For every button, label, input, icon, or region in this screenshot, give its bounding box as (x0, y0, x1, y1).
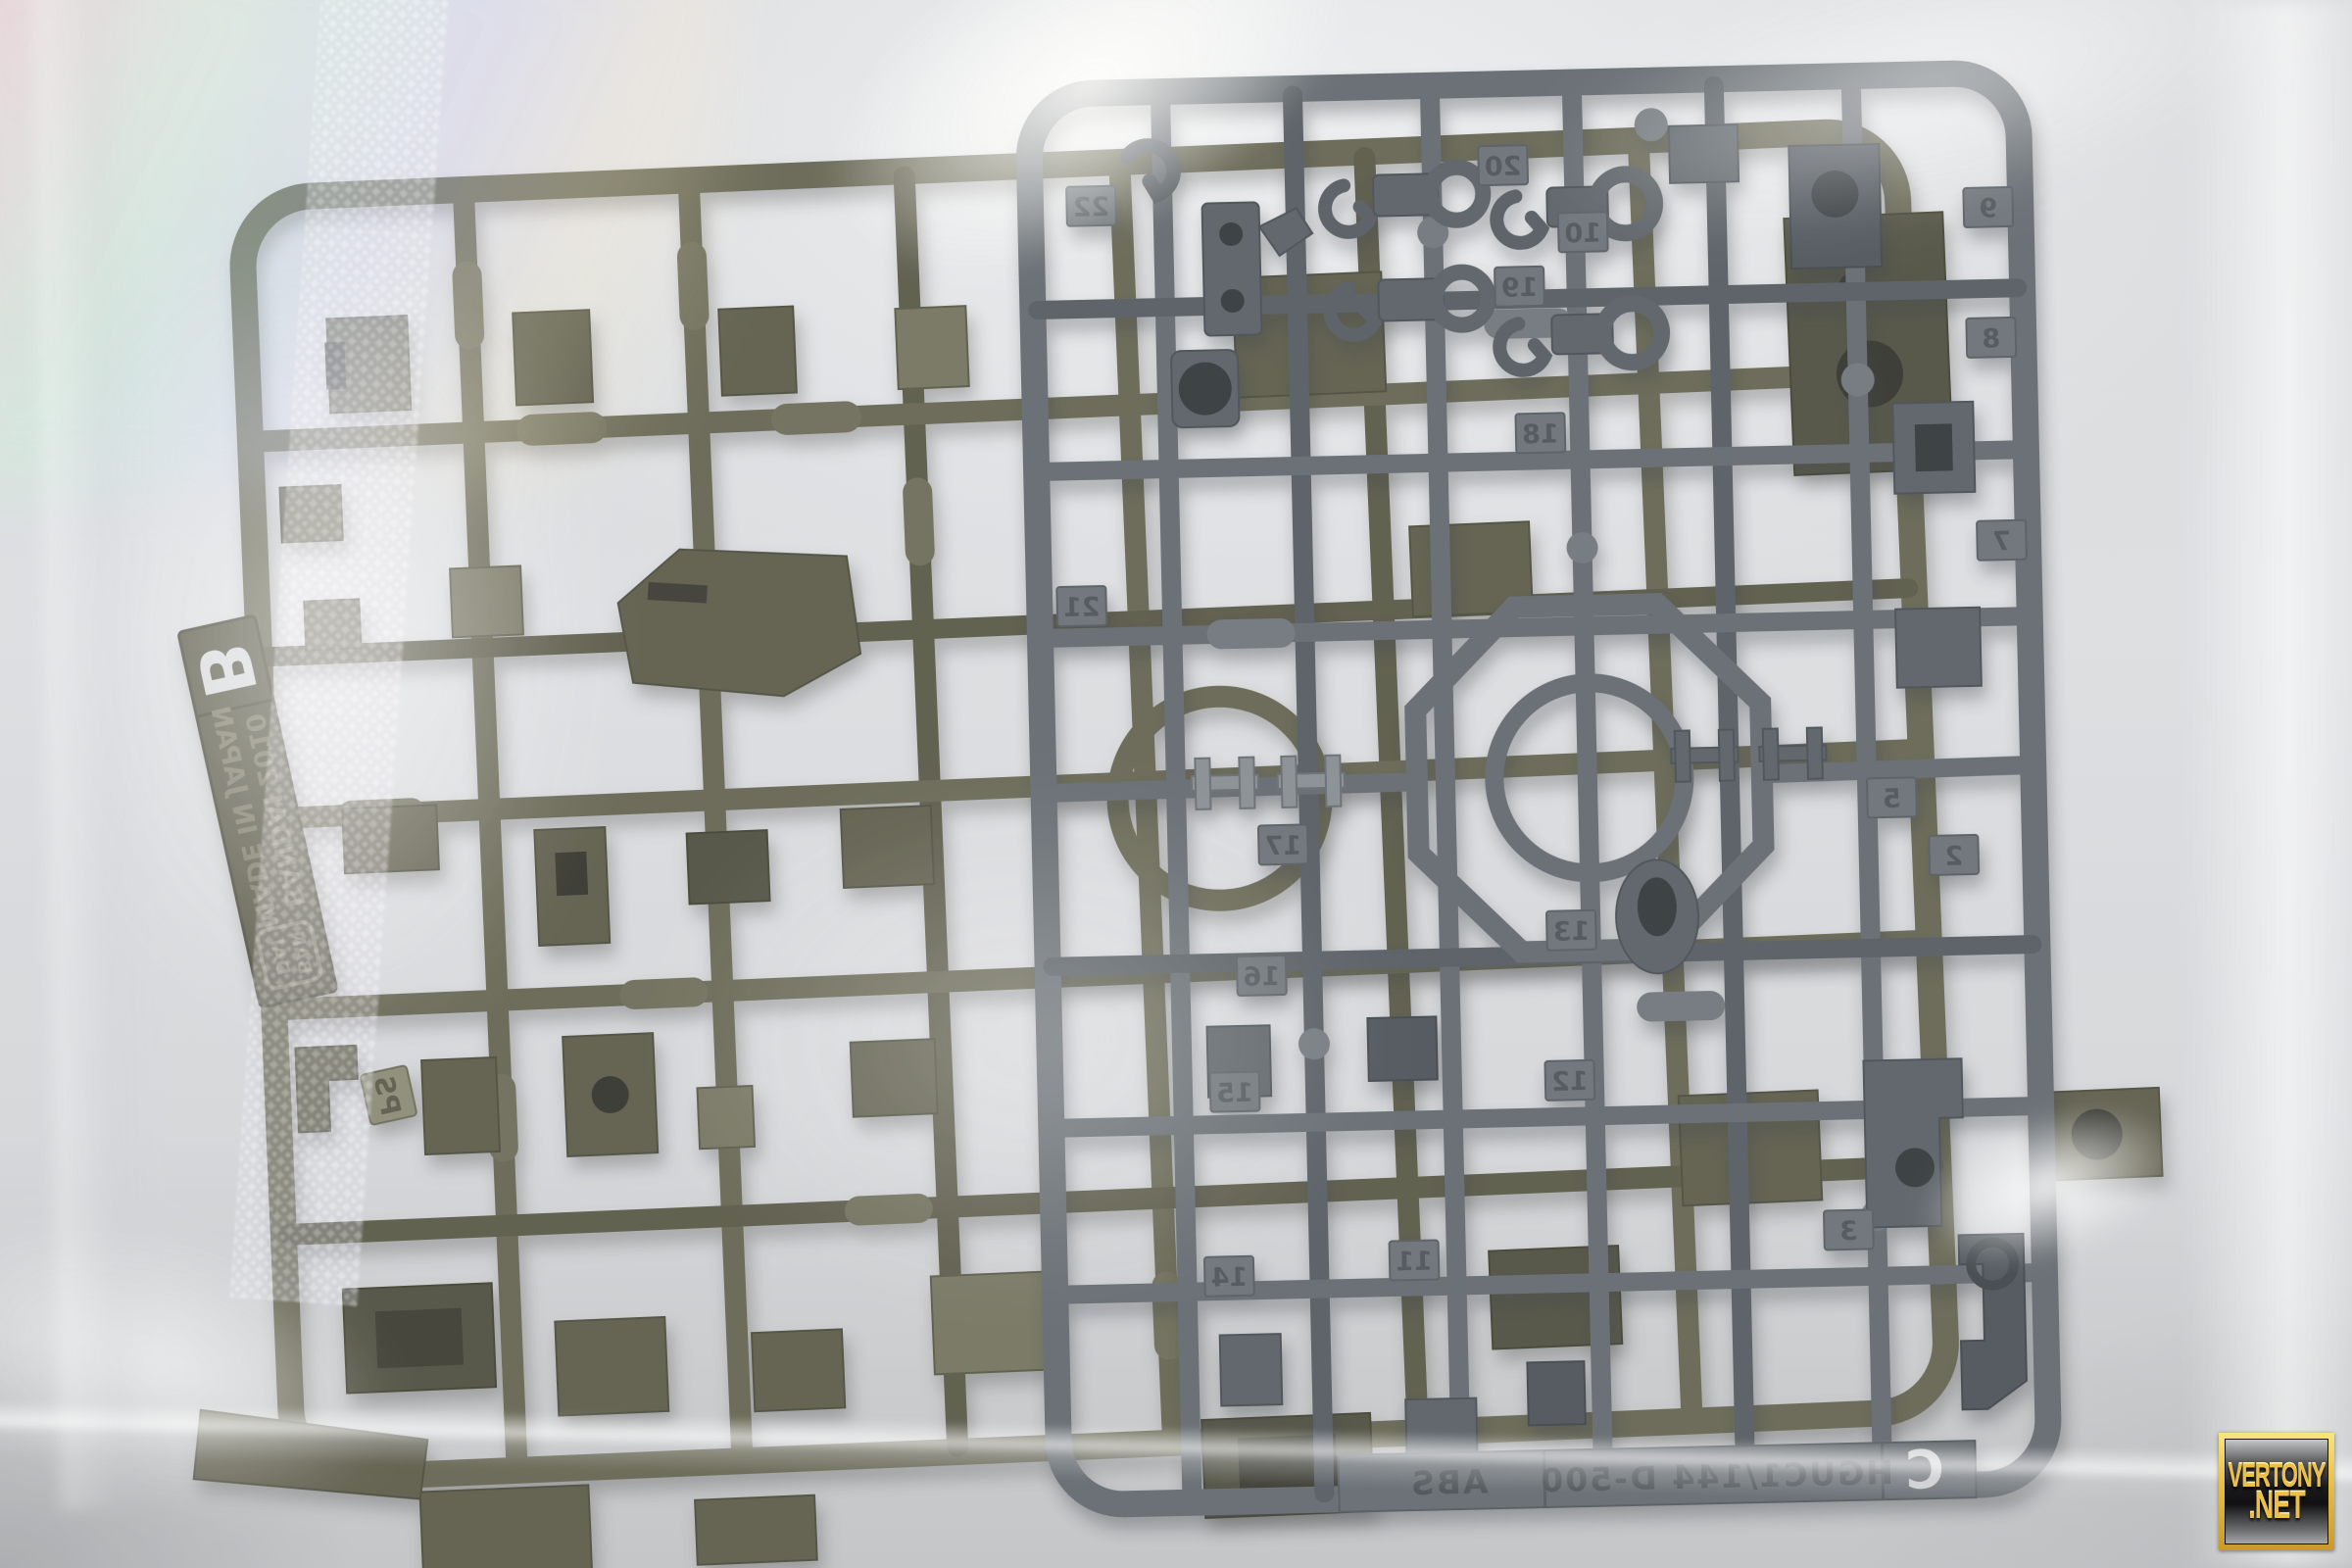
sprue-part (718, 307, 797, 396)
part-number-tag: 11 (1396, 1247, 1433, 1278)
sprue-part (1405, 1398, 1477, 1455)
bag-sheen-streak-top (765, 0, 1410, 351)
bag-left-edge-fold (33, 0, 168, 1510)
sprue-part (534, 827, 610, 946)
sprue-part (1546, 186, 1608, 226)
sprue-part (1551, 314, 1613, 354)
sprue-part (697, 1086, 755, 1149)
sprue-part (1499, 323, 1545, 371)
part-number-tag: 14 (1210, 1262, 1248, 1294)
olive-ps-tag: PS (360, 1065, 416, 1125)
sprue-part (895, 306, 968, 389)
bag-sheen-streak-topright (1509, 0, 2352, 309)
bag-sheen-spot (1885, 1066, 2213, 1306)
sprue-part (1863, 1058, 1965, 1227)
sprue-part (1615, 858, 1700, 974)
maker-text-line2: MADE IN JAPAN (204, 704, 282, 932)
part-number-tag: 19 (1500, 272, 1538, 304)
sprue-part (342, 805, 439, 873)
material-abs-text: ABS (1408, 1462, 1488, 1502)
part-number-tag: 9 (1979, 193, 1997, 223)
sprue-part (752, 1329, 845, 1411)
bag-sheen-left-glow (39, 284, 608, 1068)
bag-iridescent-corner (0, 0, 725, 490)
part-number-tags: 22 21 20 19 18 17 16 15 14 13 12 11 10 9… (1047, 134, 2042, 1299)
sprue-part (1378, 278, 1444, 320)
sprue-part (851, 1039, 938, 1117)
sprue-part (1959, 1234, 2028, 1409)
sprue-part (1324, 185, 1370, 233)
part-number-tag: 21 (1063, 592, 1101, 623)
sprue-part (1679, 1090, 1823, 1205)
sprue-part (1201, 202, 1261, 335)
sprue-part (343, 1283, 496, 1393)
sprue-part (191, 1400, 430, 1508)
sprue-part (450, 565, 523, 637)
olive-sprue: B BANDAI 2010 MADE IN JAPAN BAN DAI (140, 121, 2176, 1568)
sprue-part (616, 542, 862, 703)
sprue-part (1201, 1413, 1374, 1518)
sprue-part (304, 599, 361, 650)
part-number-tag: 20 (1485, 151, 1522, 182)
grey-frame-and-rails (1028, 73, 2049, 1506)
part-number-tag: 18 (1522, 418, 1559, 450)
part-number-tag: 3 (1839, 1216, 1858, 1247)
sprue-part (1127, 145, 1174, 195)
olive-b-tag: B BANDAI 2010 MADE IN JAPAN BAN DAI (175, 615, 338, 1008)
bag-bottom-crease (0, 1364, 2352, 1538)
sprue-part (1409, 521, 1533, 616)
bag-bottomleft-fold (0, 1178, 431, 1566)
bag-seal-strip (230, 0, 451, 1306)
sprue-part (1367, 1016, 1437, 1081)
clip-parts (1191, 727, 1827, 809)
sprue-part (1602, 303, 1662, 363)
sprue-part (1595, 173, 1655, 233)
sprue-part (1232, 271, 1386, 397)
part-number-tag: 17 (1264, 831, 1301, 862)
sprue-part (513, 310, 593, 405)
sprue-part (563, 1033, 658, 1156)
part-number-tag: 10 (1564, 218, 1601, 249)
sprue-part (419, 1485, 591, 1568)
sprue-part (1373, 173, 1439, 216)
kit-marking-text: HGUC1/144 D-500 (1539, 1453, 1893, 1499)
part-number-tag: 8 (1982, 323, 2000, 354)
part-number-tag: 22 (1072, 192, 1109, 223)
grey-parts (1127, 119, 2028, 1460)
sprue-part (841, 806, 934, 888)
part-number-tag: 16 (1243, 961, 1280, 993)
sprue-part (1892, 402, 1975, 494)
part-number-tag: 7 (1992, 526, 2011, 557)
sprue-letter-b: B (179, 635, 271, 706)
bag-sheen-center-glow (666, 784, 1392, 1294)
sprues-illustration: B BANDAI 2010 MADE IN JAPAN BAN DAI (0, 0, 2352, 1568)
part-number-tag: 12 (1551, 1066, 1589, 1098)
sprue-part (1669, 124, 1739, 183)
sprue-part (421, 1057, 500, 1154)
bandai-logo-line2: DAI (266, 937, 295, 977)
sprue-part (555, 1317, 668, 1416)
part-number-tag: 2 (1944, 841, 1963, 871)
sprue-part (1330, 288, 1376, 336)
watermark-badge: VERTONY .NET (2219, 1433, 2334, 1550)
watermark-text-line2: .NET (2248, 1484, 2305, 1528)
sprue-part (1489, 1246, 1622, 1348)
part-number-tag: 5 (1883, 784, 1901, 814)
sprue-part (1895, 608, 1982, 688)
sprue-part (326, 316, 411, 413)
watermark-badge-inner: VERTONY .NET (2225, 1439, 2328, 1544)
sprue-letter-c: C (1904, 1439, 1944, 1501)
olive-frame-and-rails (240, 129, 1948, 1480)
sprue-part (1171, 350, 1240, 428)
sprue-part (2032, 1088, 2163, 1181)
maker-text-line1: BANDAI 2010 (238, 711, 311, 911)
sprue-part (695, 1495, 817, 1565)
sprue-part (1220, 1334, 1283, 1405)
sprue-part (1527, 1361, 1585, 1425)
sprue-part (295, 1046, 360, 1133)
sprue-part (1207, 1025, 1272, 1097)
bandai-logo-line1: BAN (285, 929, 316, 977)
sprue-part (1430, 167, 1484, 220)
sprue-part (931, 1271, 1054, 1374)
part-number-tag: 13 (1552, 916, 1590, 948)
sprue-part (279, 485, 342, 543)
photo-model-kit-sprues-in-bag: B BANDAI 2010 MADE IN JAPAN BAN DAI (0, 0, 2352, 1568)
material-ps-text: PS (367, 1072, 408, 1118)
grey-sprue: 22 21 20 19 18 17 16 15 14 13 12 11 10 9… (1028, 73, 2050, 1521)
bag-haze-veil (0, 0, 2352, 1568)
sprue-part (687, 830, 770, 904)
olive-parts (144, 205, 2177, 1568)
sprue-part (1788, 144, 1882, 269)
bag-right-edge-band (2185, 0, 2352, 1568)
sprue-part (1496, 196, 1543, 244)
part-number-tag: 15 (1216, 1078, 1253, 1109)
grey-c-tag: C HGUC1/144 D-500 ABS (1338, 1438, 1976, 1514)
sprue-part (1435, 271, 1489, 325)
sprue-part (1784, 212, 1953, 475)
sprue-part (1259, 208, 1313, 256)
